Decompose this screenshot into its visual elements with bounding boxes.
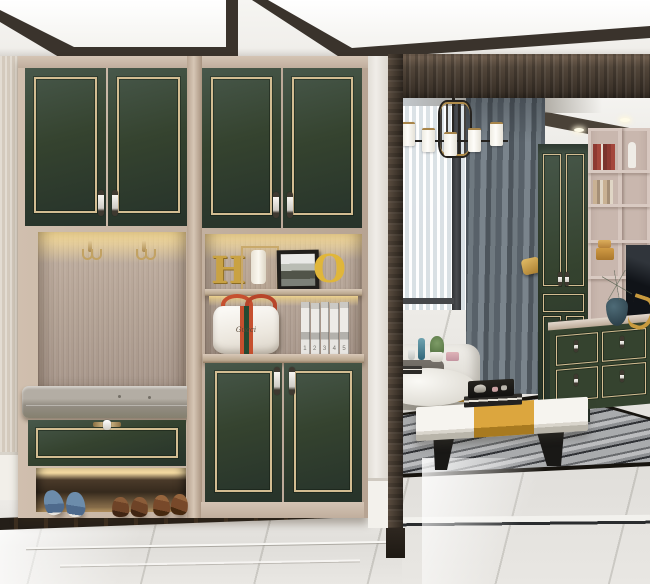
shelf-line <box>588 204 650 207</box>
door-handle <box>98 190 104 216</box>
gold-door-trim <box>215 371 272 492</box>
cabinet-door <box>284 363 362 502</box>
coat-hook <box>82 240 98 260</box>
blue-bottle <box>418 338 425 360</box>
shoe-drawer <box>28 420 186 466</box>
chandelier-shade <box>444 132 457 156</box>
drawer-handle-ceramic <box>103 420 111 430</box>
wardrobe-handle <box>558 272 562 286</box>
display-niche: H O Gucci 1 2 3 <box>205 234 362 362</box>
cushion-seam <box>26 405 188 406</box>
upper-cabinet-left <box>24 66 189 228</box>
coat-niche <box>38 232 186 388</box>
shelf-line <box>588 170 650 173</box>
interior-photo: H O Gucci 1 2 3 <box>0 0 650 584</box>
chandelier-shade <box>468 128 481 152</box>
wardrobe-handle <box>565 272 569 286</box>
glass-cup <box>408 350 415 360</box>
center-stile <box>187 56 202 518</box>
white-planter <box>430 352 443 362</box>
console-handle <box>574 340 578 352</box>
book-spine: 2 <box>311 303 320 354</box>
doorway-jamb <box>388 54 403 528</box>
gold-door-trim <box>294 371 352 492</box>
hook-prong <box>91 249 102 260</box>
bench-cushion <box>22 386 192 418</box>
gold-door-trim <box>211 77 272 215</box>
chandelier <box>402 98 512 174</box>
side-wallpaper <box>0 56 18 452</box>
window-transom <box>402 298 454 304</box>
side-table-decor-books <box>402 366 422 374</box>
niche-counter <box>203 354 364 363</box>
cabinet-door <box>108 68 189 226</box>
console-drawer-trim <box>602 328 646 362</box>
console-handle <box>620 370 624 382</box>
console-handle <box>574 374 578 386</box>
cabinet-door <box>283 68 362 228</box>
door-handle <box>289 367 295 395</box>
teacup <box>501 385 507 390</box>
handbag: Gucci <box>213 306 279 354</box>
teapot <box>474 384 486 393</box>
teacup <box>492 387 498 392</box>
upper-cabinet-middle <box>202 66 364 230</box>
ceiling-shadow <box>0 48 650 56</box>
recessed-downlight <box>620 118 630 122</box>
chandelier-shade <box>490 122 503 146</box>
wardrobe-drawer-trim <box>543 294 584 312</box>
book-spine: 5 <box>340 302 349 354</box>
cabinet-base <box>201 502 364 518</box>
wardrobe-door-trim <box>566 154 584 286</box>
wooden-box-stack <box>596 248 614 260</box>
door-handle <box>274 367 280 395</box>
wooden-box-stack <box>598 240 611 248</box>
door-handle <box>287 192 293 218</box>
book-set: 1 2 3 4 5 <box>301 302 349 354</box>
cabinet-door <box>202 68 281 228</box>
vase-branches <box>602 270 632 300</box>
living-room-view <box>402 98 650 584</box>
cabinet-door <box>25 68 106 226</box>
cushion-button <box>148 396 151 399</box>
book-spine: 3 <box>321 302 330 354</box>
hook-prong <box>145 249 156 260</box>
decor-letter-h: H <box>211 250 245 290</box>
book-spine: 1 <box>301 302 310 354</box>
lower-cabinet-middle <box>205 363 362 502</box>
brown-loafer <box>130 496 148 517</box>
console-handle <box>620 336 624 348</box>
doorway-plinth <box>386 528 405 558</box>
table-lamp <box>241 246 279 292</box>
chandelier-shade <box>422 128 435 152</box>
book-spine: 4 <box>330 303 339 354</box>
handbag-monogram: Gucci <box>223 326 269 334</box>
beige-books <box>593 180 613 204</box>
red-books <box>593 144 615 170</box>
figurine <box>628 142 636 168</box>
lamp-shade <box>251 250 266 284</box>
console-drawer-trim <box>602 362 646 398</box>
gold-door-trim <box>34 77 97 213</box>
decor-letter-o: O <box>313 248 345 290</box>
door-handle <box>273 192 279 218</box>
cushion-button <box>118 395 121 398</box>
doorway-header <box>388 54 650 98</box>
chandelier-shade <box>402 122 415 146</box>
entry-cabinet-unit: H O Gucci 1 2 3 <box>18 56 368 518</box>
cabinet-door <box>205 363 282 502</box>
gold-drawer-trim <box>36 428 178 458</box>
pink-box <box>446 352 459 361</box>
coat-hook <box>136 240 152 260</box>
wardrobe-door-trim <box>543 154 561 286</box>
photo <box>281 254 316 287</box>
gold-door-trim <box>292 77 353 215</box>
partition-baseboard <box>368 478 388 528</box>
partition-wall <box>368 56 388 528</box>
tea-tray <box>468 379 514 398</box>
door-handle <box>112 190 118 216</box>
gold-door-trim <box>117 77 180 213</box>
recessed-downlight <box>574 128 584 132</box>
